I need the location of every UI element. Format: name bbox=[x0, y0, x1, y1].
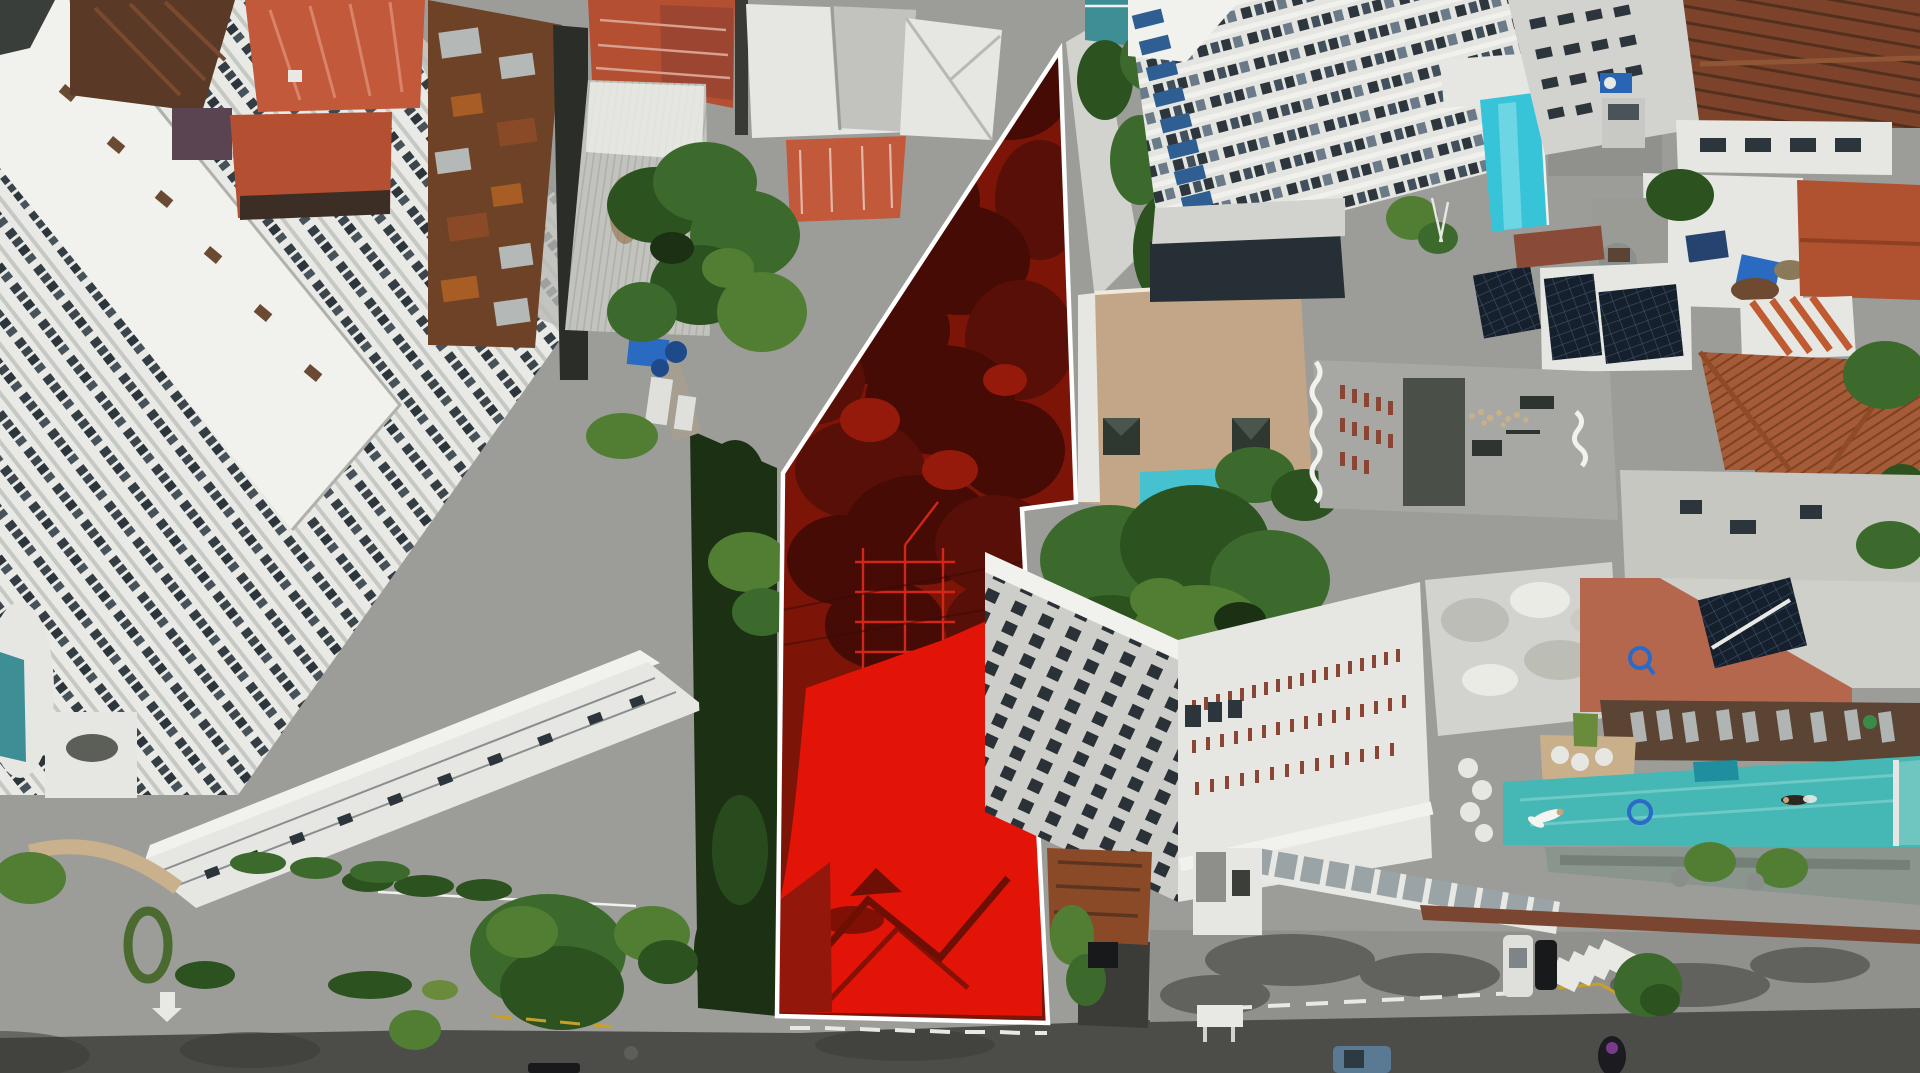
pickup-windshield bbox=[1608, 104, 1639, 120]
red-section-roof bbox=[786, 136, 906, 222]
solar-array-3 bbox=[1473, 265, 1541, 338]
podium-stain bbox=[66, 734, 118, 762]
palm-creek-1 bbox=[708, 532, 788, 592]
gray-roof-logo-building bbox=[1312, 360, 1618, 520]
deck-plant bbox=[1863, 715, 1877, 729]
solar-array-2 bbox=[1598, 284, 1683, 364]
white-car-glass bbox=[1509, 948, 1527, 968]
lawn-strip bbox=[1573, 713, 1598, 747]
rooftop-ac-unit bbox=[288, 70, 302, 82]
aerial-photo bbox=[0, 0, 1920, 1073]
chevron-roof bbox=[1740, 296, 1856, 360]
palm-left-of-lot bbox=[586, 413, 658, 459]
roof-dark-bar bbox=[1506, 430, 1540, 434]
solar-array-1 bbox=[1544, 274, 1602, 361]
gap-shadow bbox=[735, 0, 748, 135]
dark-roof-strip bbox=[1403, 378, 1465, 506]
teal-glass-curve bbox=[0, 652, 26, 762]
corner-door bbox=[1232, 870, 1250, 896]
pyramid-skylight-1 bbox=[1103, 418, 1140, 455]
roof-vent-b bbox=[1472, 440, 1502, 456]
far-right-tree-2 bbox=[1646, 169, 1714, 221]
black-car bbox=[1535, 940, 1557, 990]
black-suv bbox=[1088, 942, 1118, 968]
dark-car-bottom bbox=[528, 1063, 580, 1073]
aerial-photo-canvas bbox=[0, 0, 1920, 1073]
manhole bbox=[624, 1046, 638, 1060]
gray-wall-part bbox=[1196, 852, 1226, 902]
pool-divider bbox=[1893, 760, 1899, 846]
street-tree-right-shade bbox=[1640, 984, 1680, 1016]
pool-step-notch bbox=[1693, 760, 1739, 782]
purple-roof-patch bbox=[172, 108, 232, 160]
orange-red-flat-roofs bbox=[1797, 180, 1920, 300]
jacuzzi bbox=[1899, 760, 1920, 845]
parking-sign-icon bbox=[1604, 77, 1616, 89]
roof-vent-a bbox=[1520, 396, 1554, 409]
pickup-glass bbox=[1344, 1050, 1364, 1068]
